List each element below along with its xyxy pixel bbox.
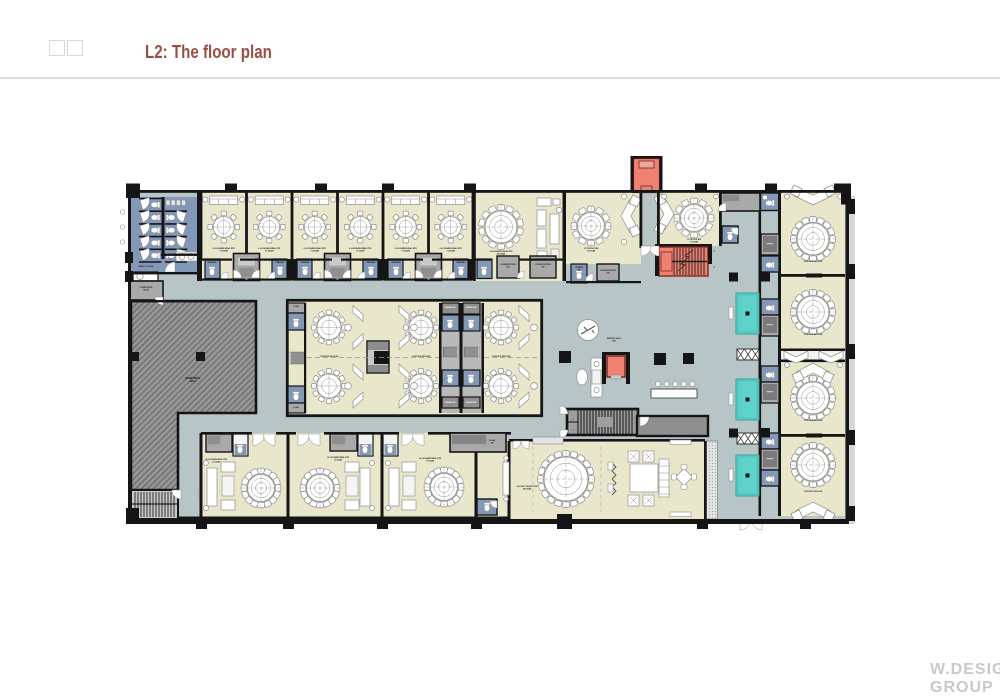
svg-text:RM: RM bbox=[507, 266, 510, 268]
svg-text:DRESSING RM: DRESSING RM bbox=[466, 307, 477, 309]
svg-text:SERVING: SERVING bbox=[767, 392, 775, 394]
svg-text:SERVING: SERVING bbox=[767, 244, 775, 246]
svg-text:ROOM: ROOM bbox=[143, 289, 149, 291]
svg-text:MALE CLOAK: MALE CLOAK bbox=[139, 265, 154, 268]
svg-text:DRESSING: DRESSING bbox=[457, 262, 467, 264]
svg-text:24.6SQM: 24.6SQM bbox=[523, 488, 532, 491]
svg-text:HALL: HALL bbox=[190, 380, 197, 383]
svg-text:DRESSING: DRESSING bbox=[208, 262, 218, 264]
svg-text:RM: RM bbox=[491, 442, 494, 444]
svg-text:DRESSING: DRESSING bbox=[301, 262, 311, 264]
svg-text:71.6SQM: 71.6SQM bbox=[212, 462, 220, 464]
svg-text:DRESSING RM: DRESSING RM bbox=[466, 402, 477, 404]
svg-text:16 PEOPLE RM 24.6M: 16 PEOPLE RM 24.6M bbox=[804, 490, 823, 493]
svg-text:DRESSING RM: DRESSING RM bbox=[445, 307, 456, 309]
svg-text:8 LUOSHEN MEAL RTE: 8 LUOSHEN MEAL RTE bbox=[258, 247, 281, 250]
svg-text:71.6SQM: 71.6SQM bbox=[334, 460, 342, 462]
svg-text:14 LUOSHEN MEAL RTE: 14 LUOSHEN MEAL RTE bbox=[489, 250, 513, 253]
svg-text:8 LUOSHEN MEAL RTE: 8 LUOSHEN MEAL RTE bbox=[395, 247, 418, 250]
svg-text:24 LIGHT FEASTS RM: 24 LIGHT FEASTS RM bbox=[517, 485, 538, 488]
svg-text:DRESSING: DRESSING bbox=[392, 262, 402, 264]
svg-text:71.6SQM: 71.6SQM bbox=[220, 251, 229, 253]
svg-text:71.6SQM: 71.6SQM bbox=[356, 251, 365, 253]
svg-text:71.6SQM: 71.6SQM bbox=[447, 251, 456, 253]
svg-text:8 LUOSHEN MEAL RTE: 8 LUOSHEN MEAL RTE bbox=[304, 247, 327, 250]
svg-text:8 LUOSHEN MEAL RTE: 8 LUOSHEN MEAL RTE bbox=[349, 247, 372, 250]
svg-text:WAITING HALL: WAITING HALL bbox=[607, 337, 622, 340]
svg-text:71.6SQM: 71.6SQM bbox=[587, 251, 596, 253]
svg-text:12 PEOPLE RM 24.6M: 12 PEOPLE RM 24.6M bbox=[320, 355, 339, 358]
svg-text:CLOAK: CLOAK bbox=[293, 406, 300, 409]
svg-text:71.6SQM: 71.6SQM bbox=[311, 251, 320, 253]
svg-text:12 PEOPLE RM 24.6M: 12 PEOPLE RM 24.6M bbox=[412, 355, 431, 358]
svg-text:12 PEOPLE RM 24.6M: 12 PEOPLE RM 24.6M bbox=[492, 355, 511, 358]
svg-text:RM: RM bbox=[607, 272, 610, 274]
svg-text:DRESSING RM: DRESSING RM bbox=[445, 402, 456, 404]
svg-text:8 LUOSHEN MEAL RTE: 8 LUOSHEN MEAL RTE bbox=[213, 247, 236, 250]
svg-text:71.6SQM: 71.6SQM bbox=[426, 461, 434, 463]
svg-text:DRESSING: DRESSING bbox=[276, 262, 286, 264]
svg-text:8 LUOSHEN MEAL RTE: 8 LUOSHEN MEAL RTE bbox=[440, 247, 463, 250]
svg-text:CLOAK: CLOAK bbox=[293, 305, 300, 308]
svg-text:SERVING: SERVING bbox=[767, 325, 775, 327]
svg-text:71.6SQM: 71.6SQM bbox=[690, 242, 698, 244]
svg-text:SERVING: SERVING bbox=[767, 459, 775, 461]
svg-text:RM: RM bbox=[542, 266, 545, 268]
svg-text:FEMALE RM: FEMALE RM bbox=[176, 248, 188, 251]
svg-text:16 PEOPLE RM 24.6M: 16 PEOPLE RM 24.6M bbox=[804, 260, 823, 263]
svg-text:DRESSING: DRESSING bbox=[367, 262, 377, 264]
svg-text:71.6SQM: 71.6SQM bbox=[402, 251, 411, 253]
svg-text:16 PEOPLE RM 24.6M: 16 PEOPLE RM 24.6M bbox=[804, 419, 823, 422]
svg-text:71.6SQM: 71.6SQM bbox=[265, 251, 274, 253]
svg-text:16 PEOPLE RM 24.6M: 16 PEOPLE RM 24.6M bbox=[804, 333, 823, 336]
svg-text:RM: RM bbox=[612, 341, 615, 343]
